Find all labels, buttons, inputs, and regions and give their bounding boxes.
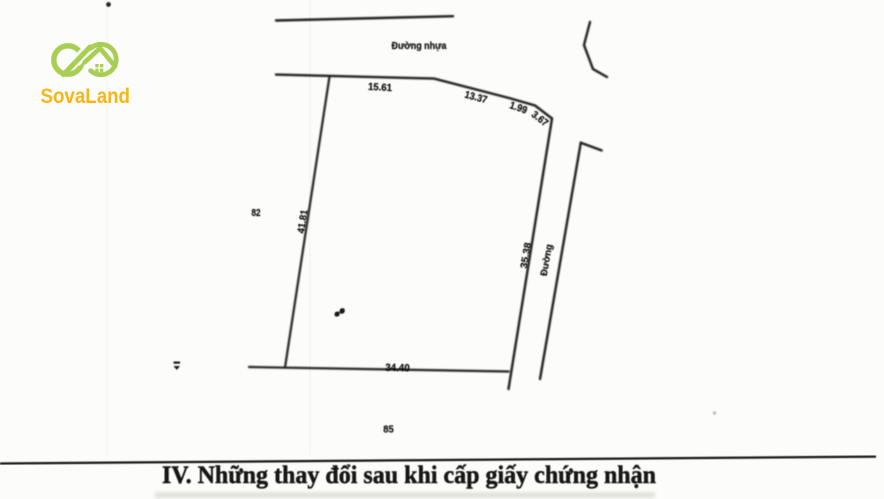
svg-text:34.40: 34.40 xyxy=(385,363,410,374)
svg-text:3.67: 3.67 xyxy=(529,109,550,129)
svg-text:82: 82 xyxy=(252,208,261,219)
svg-text:Đường: Đường xyxy=(539,243,555,277)
svg-text:15.61: 15.61 xyxy=(368,82,393,94)
svg-text:41.81: 41.81 xyxy=(296,209,311,235)
svg-text:85: 85 xyxy=(383,424,394,436)
svg-text:SovaLand: SovaLand xyxy=(41,84,131,108)
svg-text:35.38: 35.38 xyxy=(519,241,534,269)
svg-text:Đường nhựa: Đường nhựa xyxy=(392,41,447,52)
svg-text:IV. Những thay đổi sau khi cấp: IV. Những thay đổi sau khi cấp giấy chứn… xyxy=(162,462,656,489)
